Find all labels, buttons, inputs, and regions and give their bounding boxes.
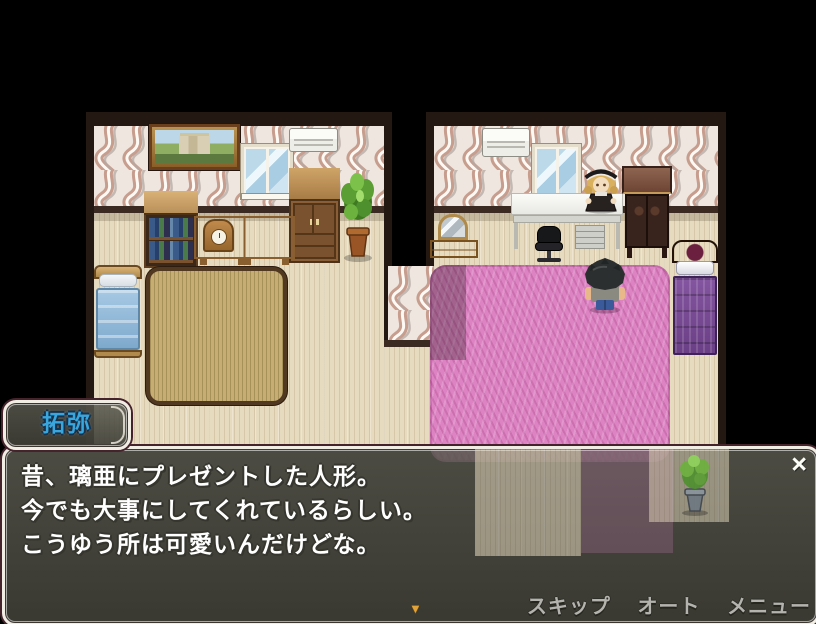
- message-menu-row: スキップ オート メニュー: [507, 590, 811, 619]
- air-conditioner-left: [289, 128, 338, 152]
- right-room-wall-top: [426, 112, 726, 126]
- small-potted-plant: [677, 453, 713, 517]
- tatami-rug: [146, 267, 287, 405]
- dark-cabinet: [622, 166, 672, 258]
- player-sprite: [581, 258, 629, 314]
- menu-button[interactable]: メニュー: [727, 596, 811, 618]
- painting-art: [155, 130, 234, 164]
- right-room-wall-right: [718, 112, 726, 450]
- continue-indicator: ▼: [409, 601, 422, 616]
- skip-button[interactable]: スキップ: [527, 596, 611, 618]
- office-chair: [533, 226, 565, 264]
- bed-blue: [94, 265, 142, 358]
- pink-rug: [430, 265, 670, 462]
- castle-painting: [149, 124, 240, 170]
- left-room-window: [241, 144, 293, 199]
- dialog-text-line: こうゆう所は可愛いんだけどな。: [21, 527, 427, 561]
- right-room-window: [532, 144, 581, 199]
- connecting-wall-base: [384, 340, 434, 347]
- left-room-wall-right: [384, 112, 392, 266]
- connecting-floor: [384, 347, 434, 447]
- bed-purple: [672, 240, 718, 355]
- mantel-clock: [203, 219, 234, 252]
- dialog-text-line: 今でも大事にしてくれているらしい。: [21, 493, 427, 527]
- doll-sprite: [582, 166, 620, 214]
- desk-drawer-unit: [575, 225, 605, 249]
- castle-icon: [179, 136, 211, 154]
- dialog-text-line: 昔、璃亜にプレゼントした人形。: [21, 459, 427, 493]
- wall-cast-shadow: [430, 265, 466, 360]
- left-room-wall-left: [86, 112, 94, 447]
- name-box: 拓弥: [3, 400, 131, 450]
- game-screen: 拓弥 昔、璃亜にプレゼントした人形。: [0, 0, 816, 624]
- connecting-wall: [384, 266, 434, 340]
- vanity-dresser: [430, 214, 478, 258]
- bookshelf: [144, 191, 198, 268]
- dialog-box[interactable]: 昔、璃亜にプレゼントした人形。 今でも大事にしてくれているらしい。 こうゆう所は…: [2, 446, 816, 624]
- name-box-flourish: [111, 406, 125, 444]
- potted-plant-large: [340, 172, 376, 264]
- wardrobe: [289, 168, 340, 263]
- close-button[interactable]: ×: [791, 449, 807, 479]
- air-conditioner-right: [482, 128, 530, 157]
- speaker-name: 拓弥: [6, 403, 128, 443]
- auto-button[interactable]: オート: [637, 596, 700, 618]
